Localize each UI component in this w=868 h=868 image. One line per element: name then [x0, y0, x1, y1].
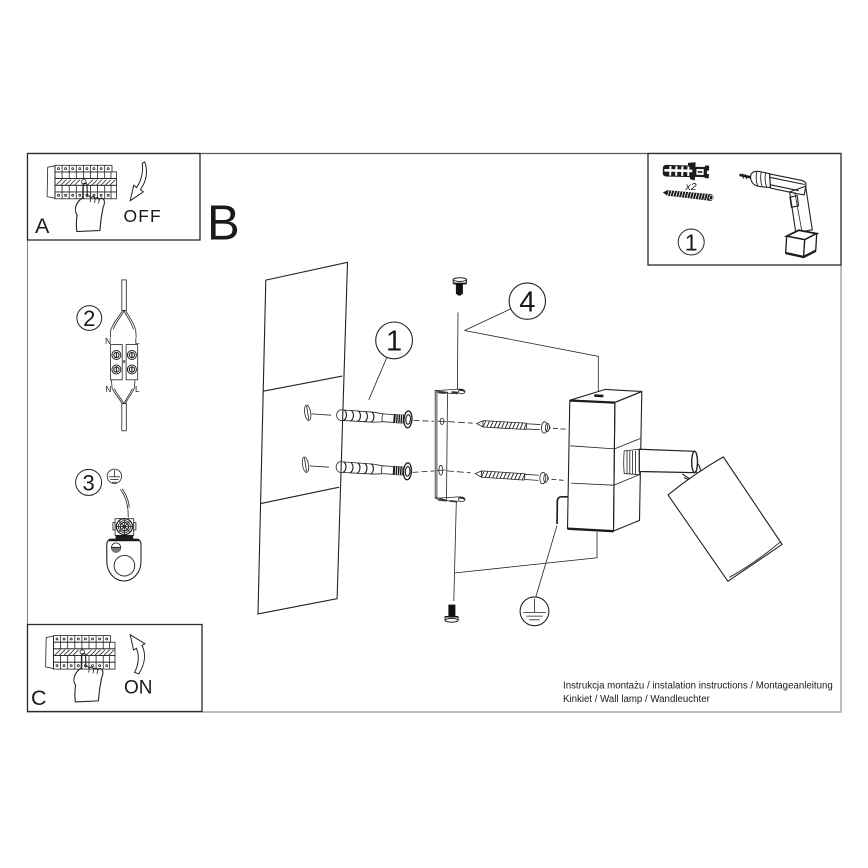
svg-text:x2: x2 [684, 181, 696, 193]
svg-text:1: 1 [386, 326, 402, 358]
svg-text:Kinkiet / Wall lamp / Wandleuc: Kinkiet / Wall lamp / Wandleuchter [563, 694, 711, 705]
svg-text:1: 1 [685, 229, 698, 255]
svg-text:A: A [35, 214, 50, 238]
svg-text:ON: ON [124, 678, 153, 699]
svg-text:B: B [207, 197, 240, 251]
svg-text:4: 4 [519, 286, 535, 318]
svg-text:Instrukcja montażu / instalati: Instrukcja montażu / instalation instruc… [563, 681, 833, 692]
svg-text:2: 2 [83, 306, 95, 331]
svg-text:C: C [31, 686, 47, 710]
svg-text:N: N [105, 384, 111, 394]
svg-text:3: 3 [82, 470, 94, 495]
svg-text:L: L [135, 384, 140, 394]
svg-text:OFF: OFF [124, 206, 162, 226]
